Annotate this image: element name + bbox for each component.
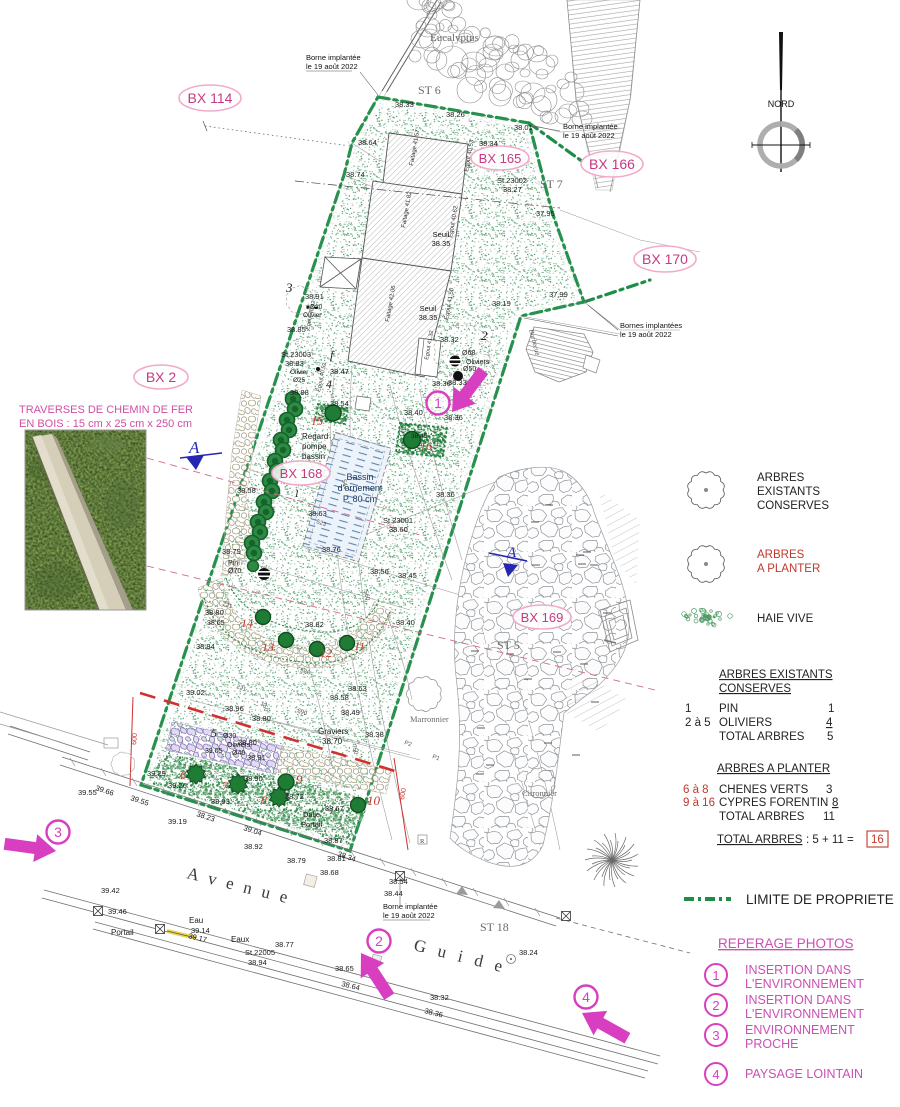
svg-text:INSERTION DANS: INSERTION DANS	[745, 963, 851, 977]
svg-text:le 19 août 2022: le 19 août 2022	[383, 911, 435, 920]
svg-text:6 à 8: 6 à 8	[683, 784, 709, 796]
svg-text:ST 18: ST 18	[480, 920, 509, 934]
svg-text:le 19 août 2022: le 19 août 2022	[306, 62, 358, 71]
svg-text:le 19 août 2022: le 19 août 2022	[620, 330, 672, 339]
svg-text:Borne implantée: Borne implantée	[383, 902, 438, 911]
svg-text:CONSERVES: CONSERVES	[719, 683, 791, 695]
svg-text:ARBRES EXISTANTS: ARBRES EXISTANTS	[719, 669, 833, 681]
svg-text:38.36: 38.36	[444, 413, 463, 422]
svg-text:10: 10	[367, 793, 381, 808]
svg-text:CHENES VERTS: CHENES VERTS	[719, 784, 809, 796]
svg-text:3: 3	[54, 824, 62, 840]
svg-text:11: 11	[823, 811, 835, 823]
svg-text:39.29: 39.29	[147, 769, 166, 778]
svg-text:Bassin: Bassin	[346, 472, 373, 482]
svg-text:38.91: 38.91	[305, 292, 324, 301]
svg-text:38.45: 38.45	[398, 571, 417, 580]
svg-text:38.65: 38.65	[335, 964, 354, 973]
svg-text:Bornes implantées: Bornes implantées	[620, 321, 682, 330]
svg-text:38.24: 38.24	[519, 948, 538, 957]
svg-text:A: A	[188, 438, 200, 457]
svg-text:4: 4	[712, 1067, 719, 1082]
svg-text:P1: P1	[431, 754, 441, 762]
svg-text:L'ENVIRONNEMENT: L'ENVIRONNEMENT	[745, 1007, 864, 1021]
svg-text:39.66: 39.66	[94, 783, 115, 797]
svg-text:9: 9	[296, 772, 303, 787]
svg-text:Dalle: Dalle	[303, 810, 320, 819]
svg-text:1: 1	[828, 703, 834, 715]
svg-text:St.23002: St.23002	[497, 176, 527, 185]
svg-text:38.67: 38.67	[325, 804, 344, 813]
svg-text:TOTAL ARBRES: TOTAL ARBRES	[719, 811, 805, 823]
svg-text:2 à 5: 2 à 5	[685, 717, 711, 729]
svg-text:38.91: 38.91	[247, 753, 266, 762]
svg-text:bassin: bassin	[302, 452, 325, 461]
svg-text:L'ENVIRONNEMENT: L'ENVIRONNEMENT	[745, 977, 864, 991]
svg-text:38.34: 38.34	[479, 139, 498, 148]
svg-text:11: 11	[354, 639, 365, 653]
svg-text:38.84: 38.84	[196, 642, 215, 651]
svg-text:38.82: 38.82	[305, 620, 324, 629]
svg-text:Eucalyptus: Eucalyptus	[430, 32, 479, 44]
svg-text:38.68: 38.68	[320, 868, 339, 877]
svg-text:38.49: 38.49	[341, 708, 360, 717]
svg-text:INSERTION DANS: INSERTION DANS	[745, 993, 851, 1007]
svg-text:39.42: 39.42	[101, 886, 120, 895]
svg-text:38.92: 38.92	[244, 842, 263, 851]
svg-text:38.60: 38.60	[389, 525, 408, 534]
svg-text:38.90: 38.90	[244, 774, 263, 783]
svg-text:ARBRES: ARBRES	[757, 549, 805, 561]
svg-text:Ø50: Ø50	[463, 366, 476, 373]
svg-text:EN BOIS : 15 cm x 25 cm x 250: EN BOIS : 15 cm x 25 cm x 250 cm	[19, 418, 192, 430]
svg-text:Ø25: Ø25	[293, 377, 306, 384]
svg-text:14: 14	[241, 616, 253, 630]
svg-text:38.65: 38.65	[207, 620, 225, 627]
svg-text:16: 16	[871, 834, 884, 846]
svg-text:38.32: 38.32	[430, 993, 449, 1002]
svg-text:Borne implantée: Borne implantée	[563, 122, 618, 131]
svg-text:P. 80 cm: P. 80 cm	[343, 494, 377, 504]
svg-text:38.40: 38.40	[404, 408, 423, 417]
svg-text:39.05: 39.05	[205, 748, 223, 755]
svg-text:CONSERVES: CONSERVES	[757, 500, 829, 512]
svg-text:OLIVIERS: OLIVIERS	[719, 717, 772, 729]
svg-text:38.58: 38.58	[237, 486, 256, 495]
svg-text:38.33: 38.33	[395, 100, 414, 109]
svg-text:38.19: 38.19	[492, 299, 511, 308]
svg-text:St.23003: St.23003	[281, 350, 311, 359]
svg-text:600: 600	[131, 733, 139, 745]
svg-text:LIMITE DE PROPRIETE: LIMITE DE PROPRIETE	[746, 892, 894, 907]
svg-text:39.02: 39.02	[186, 688, 205, 697]
svg-text:38.88: 38.88	[290, 388, 309, 397]
svg-text:1: 1	[434, 395, 442, 411]
svg-text:38.85: 38.85	[287, 325, 306, 334]
svg-text:38.74: 38.74	[346, 170, 365, 179]
svg-text:PIN: PIN	[719, 703, 738, 715]
svg-text:Pin: Pin	[228, 560, 238, 567]
svg-text:38.33: 38.33	[448, 378, 467, 387]
svg-text:Seuil: Seuil	[420, 304, 437, 313]
svg-text:13: 13	[262, 640, 274, 654]
svg-text:Graviers: Graviers	[318, 727, 348, 736]
svg-text:38.56: 38.56	[370, 567, 389, 576]
svg-text:Borne implantée: Borne implantée	[306, 53, 361, 62]
svg-text:TRAVERSES DE CHEMIN DE FER: TRAVERSES DE CHEMIN DE FER	[19, 404, 193, 416]
svg-text:2: 2	[481, 328, 488, 343]
svg-text:ARBRES A PLANTER: ARBRES A PLANTER	[717, 763, 830, 775]
svg-text:16: 16	[420, 439, 432, 453]
svg-text:39.55: 39.55	[78, 788, 97, 797]
svg-text:Portail: Portail	[301, 820, 323, 829]
svg-text:ARBRES: ARBRES	[757, 472, 805, 484]
svg-text:Olivier: Olivier	[290, 369, 309, 376]
svg-text:38.26: 38.26	[446, 110, 465, 119]
svg-text:PAYSAGE LOINTAIN: PAYSAGE LOINTAIN	[745, 1067, 863, 1081]
svg-text:8: 8	[832, 797, 838, 809]
svg-text:A PLANTER: A PLANTER	[757, 563, 820, 575]
svg-text:38.79: 38.79	[287, 856, 306, 865]
svg-text:38.93: 38.93	[211, 797, 230, 806]
svg-text:38.87: 38.87	[324, 836, 343, 845]
svg-text:38.38: 38.38	[365, 730, 384, 739]
svg-text:R: R	[420, 838, 425, 845]
svg-text:Ø68: Ø68	[462, 350, 475, 357]
svg-text:38.83: 38.83	[285, 359, 304, 368]
svg-text:38.32: 38.32	[440, 335, 459, 344]
svg-text:5: 5	[211, 726, 217, 740]
svg-text:Oliviers: Oliviers	[227, 742, 251, 749]
svg-text:37.99: 37.99	[549, 290, 568, 299]
svg-text:5: 5	[827, 731, 833, 743]
svg-text:NORD: NORD	[768, 99, 795, 109]
svg-text:3: 3	[285, 280, 293, 295]
svg-text:Regard: Regard	[302, 432, 328, 441]
svg-text:ST 5: ST 5	[497, 638, 520, 652]
svg-text:ENVIRONNEMENT: ENVIRONNEMENT	[745, 1023, 855, 1037]
svg-text:Ø40: Ø40	[232, 750, 245, 757]
svg-text:4: 4	[326, 377, 332, 391]
svg-text:38.40: 38.40	[396, 618, 415, 627]
svg-text:600: 600	[399, 788, 408, 801]
svg-text:38.35: 38.35	[432, 239, 451, 248]
svg-text:BX 169: BX 169	[521, 610, 564, 625]
svg-text:38.54: 38.54	[389, 877, 408, 886]
svg-text:Ø30: Ø30	[223, 733, 236, 740]
svg-text:38.76: 38.76	[322, 545, 341, 554]
svg-text:38.36: 38.36	[424, 1006, 444, 1019]
svg-text:Oliviers: Oliviers	[466, 359, 490, 366]
svg-text:8: 8	[261, 793, 267, 807]
svg-text:St.23001: St.23001	[383, 516, 413, 525]
svg-text:38.80: 38.80	[252, 714, 271, 723]
svg-text:BX 168: BX 168	[280, 466, 323, 481]
svg-text:3: 3	[826, 784, 832, 796]
svg-text:■Ø30: ■Ø30	[306, 304, 323, 311]
svg-text:38.96: 38.96	[225, 704, 244, 713]
svg-text:4: 4	[582, 989, 590, 1005]
svg-text:38.27: 38.27	[503, 185, 522, 194]
svg-text:1: 1	[294, 488, 300, 500]
svg-text:BX 2: BX 2	[146, 369, 177, 385]
svg-text:Citronnier: Citronnier	[522, 788, 557, 798]
svg-text:6: 6	[180, 768, 186, 782]
svg-text:38.94: 38.94	[248, 958, 267, 967]
svg-text:G u i d e: G u i d e	[412, 935, 508, 976]
svg-text:1: 1	[685, 703, 691, 715]
svg-text:TOTAL ARBRES: TOTAL ARBRES	[717, 834, 803, 846]
svg-text:38.77: 38.77	[275, 940, 294, 949]
svg-text:Ø70: Ø70	[228, 568, 241, 575]
svg-text:38.54: 38.54	[330, 399, 349, 408]
svg-text:4: 4	[826, 717, 833, 729]
svg-text:Seuil: Seuil	[433, 230, 450, 239]
svg-text:: 5 + 11 =: : 5 + 11 =	[806, 834, 854, 846]
svg-text:38.64: 38.64	[358, 138, 377, 147]
svg-text:ST 7: ST 7	[540, 177, 563, 191]
svg-text:38.63: 38.63	[348, 684, 367, 693]
svg-text:A v e n u e: A v e n u e	[185, 863, 293, 907]
svg-text:38.35: 38.35	[419, 313, 438, 322]
svg-text:15: 15	[311, 414, 323, 428]
svg-text:REPERAGE PHOTOS: REPERAGE PHOTOS	[718, 936, 854, 951]
svg-text:Barbecue: Barbecue	[527, 328, 542, 356]
svg-text:38.01: 38.01	[514, 123, 533, 132]
svg-text:12: 12	[320, 646, 332, 660]
svg-text:Eau: Eau	[189, 916, 203, 925]
svg-text:ST 6: ST 6	[418, 83, 441, 97]
svg-text:38.80: 38.80	[205, 608, 224, 617]
svg-text:39.55: 39.55	[129, 793, 150, 807]
svg-text:38.47: 38.47	[330, 367, 349, 376]
svg-text:38.70: 38.70	[322, 737, 343, 746]
svg-text:pompe: pompe	[302, 442, 327, 451]
svg-text:2: 2	[375, 933, 383, 949]
svg-text:Portail: Portail	[111, 928, 134, 937]
svg-text:EXISTANTS: EXISTANTS	[757, 486, 820, 498]
svg-text:39.46: 39.46	[108, 907, 127, 916]
svg-text:BX 165: BX 165	[479, 151, 522, 166]
svg-text:TOTAL ARBRES: TOTAL ARBRES	[719, 731, 805, 743]
svg-text:PROCHE: PROCHE	[745, 1037, 798, 1051]
svg-text:39.19: 39.19	[168, 817, 187, 826]
svg-text:37.95: 37.95	[536, 209, 555, 218]
svg-text:P2: P2	[403, 740, 413, 748]
svg-text:HAIE VIVE: HAIE VIVE	[757, 613, 814, 625]
svg-text:le 19 août 2022: le 19 août 2022	[563, 131, 615, 140]
svg-text:St.22005: St.22005	[245, 948, 275, 957]
svg-text:CYPRES FORENTIN: CYPRES FORENTIN	[719, 797, 828, 809]
svg-text:Olivier: Olivier	[303, 312, 322, 319]
svg-text:7: 7	[222, 779, 229, 793]
svg-text:38.58: 38.58	[330, 693, 349, 702]
svg-text:Eaux: Eaux	[231, 935, 249, 944]
svg-text:38.63: 38.63	[308, 509, 327, 518]
svg-text:BX 166: BX 166	[589, 156, 635, 172]
svg-text:1: 1	[712, 968, 719, 983]
svg-text:38.79: 38.79	[222, 547, 241, 556]
svg-text:38.36: 38.36	[436, 490, 455, 499]
svg-text:BX 170: BX 170	[642, 251, 688, 267]
svg-text:Marronnier: Marronnier	[410, 714, 449, 724]
svg-text:38.72: 38.72	[285, 792, 304, 801]
svg-text:39.26: 39.26	[168, 781, 187, 790]
svg-text:BX 114: BX 114	[188, 90, 233, 106]
svg-text:3: 3	[712, 1028, 719, 1043]
svg-text:2: 2	[712, 998, 719, 1013]
svg-text:9 à 16: 9 à 16	[683, 797, 715, 809]
